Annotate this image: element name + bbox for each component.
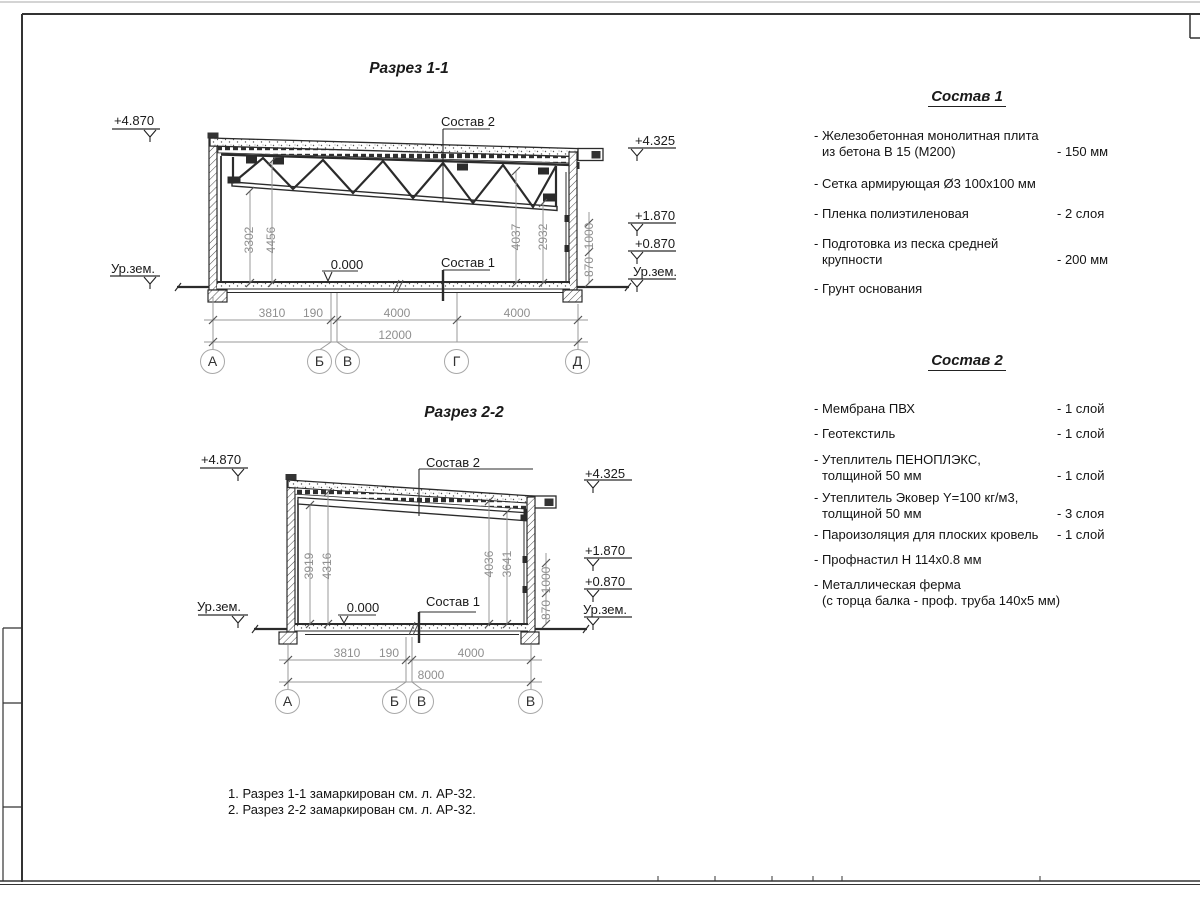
sostav2-item-2: - Геотекстиль- 1 слой [814,426,1146,442]
s1-hdim-2: 190 [293,306,333,320]
s1-axis-b: Б [307,349,332,374]
section-2-title: Разрез 2-2 [389,404,539,422]
s1-hdim-4: 4000 [492,306,542,320]
note-1: 1. Разрез 1-1 замаркирован см. л. АР-32. [228,786,476,802]
sostav1-heading: Состав 1 [877,88,1057,107]
s1-ground-level-right: Ур.зем. [630,264,680,279]
s1-vdim-4456: 4456 [264,218,278,262]
sostav1-item-4: - Подготовка из песка среднейкрупности -… [814,236,1146,268]
sheet-notes: 1. Разрез 1-1 замаркирован см. л. АР-32.… [228,786,476,818]
s2-hdim-2: 190 [369,646,409,660]
sostav1-item-3: - Пленка полиэтиленовая - 2 слоя [814,206,1146,222]
s1-sostav2-label: Состав 2 [432,114,504,129]
s2-elevation-right-3: +0.870 [580,574,630,589]
s1-axis-g: Г [444,349,469,374]
s1-axis-d: Д [565,349,590,374]
s2-elevation-right-2: +1.870 [580,543,630,558]
s2-sostav2-label: Состав 2 [417,455,489,470]
sostav2-heading: Состав 2 [877,352,1057,371]
s2-total-dim: 8000 [406,668,456,682]
drawing-sheet: Разрез 1-1 +4.870 Ур.зем. Состав 2 Соста… [0,0,1200,900]
s2-elevation-top-left: +4.870 [196,452,246,467]
s2-hdim-3: 4000 [446,646,496,660]
s1-vdim-2932: 2932 [536,215,550,259]
sostav2-item-7: - Металлическая ферма(с торца балка - пр… [814,577,1146,609]
s2-hdim-1: 3810 [322,646,372,660]
s2-elevation-right-1: +4.325 [580,466,630,481]
s1-sostav1-label: Состав 1 [432,255,504,270]
sostav1-item-1: - Железобетонная монолитная плитаиз бето… [814,128,1146,160]
s2-ground-level-right: Ур.зем. [580,602,630,617]
s2-walldim-1000: 1000 [539,558,553,602]
s1-hdim-1: 3810 [247,306,297,320]
sostav2-item-6: - Профнастил Н 114х0.8 мм [814,552,1146,568]
s1-walldim-1000: 1000 [582,214,596,258]
sostav2-item-4: - Утеплитель Эковер Y=100 кг/м3,толщиной… [814,490,1146,522]
section-2-drawing [198,468,632,690]
s1-elevation-top-left: +4.870 [110,113,158,128]
s1-axis-v: В [335,349,360,374]
s2-zero-level: 0.000 [336,600,390,615]
s1-hdim-3: 4000 [372,306,422,320]
s1-total-dim: 12000 [370,328,420,342]
s2-axis-b: Б [382,689,407,714]
s1-zero-level: 0.000 [320,257,374,272]
s1-vdim-4037: 4037 [509,215,523,259]
s2-ground-level-left: Ур.зем. [194,599,244,614]
s2-vdim-3919: 3919 [302,544,316,588]
s2-vdim-4316: 4316 [320,544,334,588]
s1-elevation-right-2: +1.870 [630,208,680,223]
s2-sostav1-label: Состав 1 [417,594,489,609]
sostav2-item-5: - Пароизоляция для плоских кровель- 1 сл… [814,527,1146,543]
s1-vdim-3302: 3302 [242,218,256,262]
sostav1-item-5: - Грунт основания [814,281,1146,297]
sostav2-item-1: - Мембрана ПВХ- 1 слой [814,401,1146,417]
s2-axis-v1: В [409,689,434,714]
sostav1-item-2: - Сетка армирующая Ø3 100х100 мм [814,176,1146,192]
s1-ground-level-left: Ур.зем. [108,261,158,276]
section-1-title: Разрез 1-1 [334,60,484,78]
sostav2-item-3: - Утеплитель ПЕНОПЛЭКС,толщиной 50 мм - … [814,452,1146,484]
s2-axis-v2: В [518,689,543,714]
s1-elevation-right-1: +4.325 [630,133,680,148]
s1-elevation-right-3: +0.870 [630,236,680,251]
s1-axis-a: А [200,349,225,374]
s2-vdim-3641: 3641 [500,542,514,586]
s2-vdim-4036: 4036 [482,542,496,586]
note-2: 2. Разрез 2-2 замаркирован см. л. АР-32. [228,802,476,818]
s2-axis-a: А [275,689,300,714]
